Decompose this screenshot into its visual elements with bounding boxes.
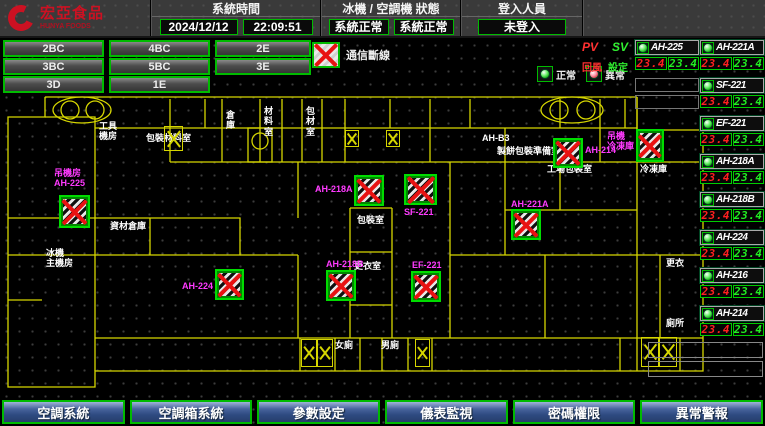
unit-values: 23.423.4 [635,57,699,70]
empty-slot [648,342,763,358]
room-label: 廁所 [666,318,684,328]
zone-button-row: 3D1E [3,76,316,93]
unit-lamp-icon [702,42,714,54]
unit-block-ah-218a: AH-218A23.423.4 [700,154,764,184]
unit-block-sf-221: SF-22123.423.4 [700,78,764,108]
room-label: 更衣 [666,258,684,268]
unit-lamp-icon [702,308,714,320]
unit-title[interactable]: EF-221 [700,116,764,131]
unit-sv-value: 23.4 [733,323,765,336]
header-bar: 宏亞食品 HUNYA FOODS 系統時間 2024/12/12 22:09:5… [0,0,765,38]
status-lamp-icon [703,309,713,319]
unit-values: 23.423.4 [700,247,764,260]
stair-icon [345,130,359,147]
normal-lamp-icon [537,66,553,82]
room-label: 冰機 主機房 [46,248,73,269]
unit-sv-value: 23.4 [733,133,765,146]
unit-values: 23.423.4 [700,95,764,108]
stair-icon [301,339,317,367]
ahu-offline-icon[interactable] [326,270,356,301]
nav-button-異常警報[interactable]: 異常警報 [640,400,763,424]
unit-title[interactable]: AH-214 [700,306,764,321]
unit-name: AH-216 [716,270,747,281]
system-time-label: 系統時間 [152,0,320,17]
unit-lamp-icon [702,270,714,282]
status-lamp-icon [703,195,713,205]
unit-values: 23.423.4 [700,285,764,298]
unit-name: AH-218A [716,156,754,167]
unit-pv-value: 23.4 [700,323,732,336]
status-lamp-icon [703,157,713,167]
sv-sub-label: 設定 [608,59,628,74]
zone-button-3bc[interactable]: 3BC [3,58,104,75]
ahu-offline-icon[interactable] [511,209,541,240]
login-user-label: 登入人員 [462,0,582,17]
unit-block-ah-225: AH-22523.423.4 [635,40,699,70]
unit-values: 23.423.4 [700,133,764,146]
unit-name: AH-221A [716,42,754,53]
comm-offline-icon [312,42,340,68]
room-label: 倉 庫 [226,110,235,131]
unit-block-ah-214: AH-21423.423.4 [700,306,764,336]
system-time-value: 22:09:51 [243,19,313,35]
unit-title[interactable]: AH-218A [700,154,764,169]
ahu-offline-icon[interactable] [354,175,384,206]
unit-pv-value: 23.4 [700,247,732,260]
unit-pv-value: 23.4 [700,285,732,298]
empty-slot [635,78,699,92]
zone-button-row: 3BC5BC3E [3,58,316,75]
zone-button-2e[interactable]: 2E [215,40,311,57]
zone-button-2bc[interactable]: 2BC [3,40,104,57]
empty-slot [635,95,699,109]
stair-icon [415,339,430,367]
normal-label: 正常 [556,67,576,82]
room-label: 資材倉庫 [110,221,146,231]
equipment-label: AH-224 [182,281,213,291]
room-label: 材 料 室 [264,106,273,137]
room-label: 包裝室 [357,215,384,225]
unit-title[interactable]: AH-225 [635,40,699,55]
unit-name: AH-224 [716,232,747,243]
unit-lamp-icon [702,118,714,130]
zone-button-1e[interactable]: 1E [109,76,210,93]
comm-offline-label: 通信斷線 [346,47,390,63]
equipment-label: SF-221 [404,207,434,217]
empty-slot [648,361,763,377]
unit-block-ah-216: AH-21623.423.4 [700,268,764,298]
ahu-status-value: 系統正常 [394,19,454,35]
unit-pv-value: 23.4 [700,95,732,108]
equipment-label: AH-218A [315,184,353,194]
zone-button-4bc[interactable]: 4BC [109,40,210,57]
status-lamp-icon [703,43,713,53]
room-label: 製餅包裝準備室 [497,146,560,156]
zone-button-3e[interactable]: 3E [215,58,311,75]
pv-sv-header: PV SV 回風 設定 [582,40,634,74]
system-date-value: 2024/12/12 [160,19,238,35]
nav-button-儀表監視[interactable]: 儀表監視 [385,400,508,424]
equipment-label: AH-218B [326,259,364,269]
unit-sv-value: 23.4 [733,171,765,184]
unit-pv-value: 23.4 [700,209,732,222]
status-lamp-icon [703,81,713,91]
unit-title[interactable]: AH-221A [700,40,764,55]
unit-sv-value: 23.4 [668,57,700,70]
unit-block-ah-221a: AH-221A23.423.4 [700,40,764,70]
nav-button-空調系統[interactable]: 空調系統 [2,400,125,424]
room-label: 男廁 [381,340,399,350]
unit-block-ah-224: AH-22423.423.4 [700,230,764,260]
unit-title[interactable]: AH-224 [700,230,764,245]
unit-name: AH-214 [716,308,747,319]
unit-values: 23.423.4 [700,171,764,184]
ahu-offline-icon[interactable] [636,129,664,162]
pv-label: PV [582,40,598,54]
room-label: 女廁 [335,340,353,350]
unit-lamp-icon [702,194,714,206]
unit-values: 23.423.4 [700,209,764,222]
unit-lamp-icon [637,42,649,54]
unit-sv-value: 23.4 [733,247,765,260]
unit-pv-value: 23.4 [635,57,667,70]
equipment-label: AH-221A [511,199,549,209]
unit-block-ah-218b: AH-218B23.423.4 [700,192,764,222]
room-label: 工具 機房 [99,121,117,142]
unit-pv-value: 23.4 [700,57,732,70]
bottom-nav: 空調系統空調箱系統參數設定儀表監視密碼權限異常警報 [2,400,763,424]
chiller-status-value: 系統正常 [329,19,389,35]
unit-sv-value: 23.4 [733,285,765,298]
zone-button-5bc[interactable]: 5BC [109,58,210,75]
equipment-label: 吊機房 AH-225 [54,168,85,189]
unit-pv-value: 23.4 [700,171,732,184]
room-label: 冷凍庫 [640,164,667,174]
unit-lamp-icon [702,232,714,244]
room-label: AH-B3 [482,133,510,143]
sv-label: SV [612,40,628,54]
login-status-value: 未登入 [478,19,566,35]
status-lamp-icon [638,43,648,53]
unit-name: EF-221 [716,118,746,129]
status-lamp-icon [703,119,713,129]
company-subtitle: HUNYA FOODS [40,23,104,30]
logo: 宏亞食品 HUNYA FOODS [0,0,152,36]
unit-name: SF-221 [716,80,746,91]
stair-icon [386,130,400,147]
unit-panel: AH-221A23.423.4SF-22123.423.4EF-22123.42… [700,40,764,344]
unit-pv-value: 23.4 [700,133,732,146]
equipment-label: EF-221 [412,260,442,270]
stair-icon [164,126,183,151]
status-lamp-icon [703,233,713,243]
unit-values: 23.423.4 [700,323,764,336]
room-label: 包 材 室 [306,106,315,137]
company-name: 宏亞食品 [40,6,104,21]
unit-name: AH-218B [716,194,754,205]
stair-icon [317,339,333,367]
unit-title[interactable]: SF-221 [700,78,764,93]
unit-title[interactable]: AH-218B [700,192,764,207]
ahu-offline-icon[interactable] [404,174,437,205]
ahu-offline-icon[interactable] [553,138,583,168]
unit-sv-value: 23.4 [733,95,765,108]
ahu-offline-icon[interactable] [215,269,244,300]
status-lamp-icon [703,271,713,281]
equipment-label: 吊機 冷凍庫 [607,131,634,152]
company-logo-icon [4,1,37,34]
unit-block-ef-221: EF-22123.423.4 [700,116,764,146]
unit-sv-value: 23.4 [733,209,765,222]
nav-button-空調箱系統[interactable]: 空調箱系統 [130,400,253,424]
unit-values: 23.423.4 [700,57,764,70]
unit-lamp-icon [702,156,714,168]
unit-sv-value: 23.4 [733,57,765,70]
unit-panel-empty-rows [648,342,763,380]
unit-name: AH-225 [651,42,682,53]
zone-button-grid: 2BC4BC2E3BC5BC3E3D1E [3,40,316,94]
ahu-offline-icon[interactable] [411,271,441,302]
unit-lamp-icon [702,80,714,92]
nav-button-密碼權限[interactable]: 密碼權限 [513,400,636,424]
machine-status-label: 冰機 / 空調機 狀態 [322,0,460,17]
zone-button-3d[interactable]: 3D [3,76,104,93]
nav-button-參數設定[interactable]: 參數設定 [257,400,380,424]
unit-title[interactable]: AH-216 [700,268,764,283]
pv-sub-label: 回風 [582,59,602,74]
ahu-offline-icon[interactable] [59,195,90,228]
zone-button-row: 2BC4BC2E [3,40,316,57]
unit-column-ah-225: AH-22523.423.4 [635,40,699,109]
